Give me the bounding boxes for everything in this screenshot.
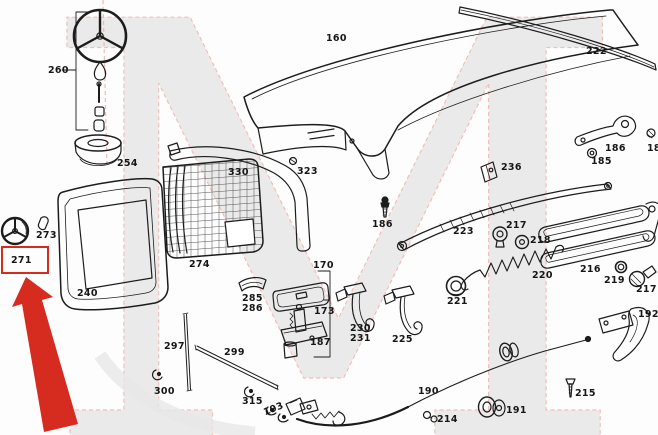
- watermark-m: M: [38, 0, 632, 435]
- part-label-254: 254: [117, 158, 138, 169]
- part-label-300: 300: [154, 386, 175, 397]
- part-label-274: 274: [189, 259, 210, 270]
- part-label-184: 184: [647, 143, 658, 154]
- part-label-330: 330: [228, 167, 249, 178]
- part-label-231: 231: [350, 333, 371, 344]
- diagram-art: M: [0, 0, 658, 435]
- part-label-286: 286: [242, 303, 263, 314]
- part-label-186a: 186: [372, 219, 393, 230]
- part-label-271: 271: [11, 255, 32, 266]
- part-label-221: 221: [447, 296, 468, 307]
- part-label-260: 260: [48, 65, 69, 76]
- part-label-173: 173: [314, 306, 335, 317]
- part-label-299: 299: [224, 347, 245, 358]
- parts-diagram-page: M: [0, 0, 658, 435]
- part-label-215: 215: [575, 388, 596, 399]
- part-label-323: 323: [297, 166, 318, 177]
- part-label-190: 190: [418, 386, 439, 397]
- part-label-160: 160: [326, 33, 347, 44]
- badge-271-drawing: [2, 218, 28, 244]
- part-label-218: 218: [530, 235, 551, 246]
- highlight-box: 271: [1, 246, 49, 274]
- part-label-185: 185: [591, 156, 612, 167]
- part-label-170: 170: [313, 260, 334, 271]
- part-label-225: 225: [392, 334, 413, 345]
- part-label-217b: 217: [636, 284, 657, 295]
- part-label-219: 219: [604, 275, 625, 286]
- part-label-222: 222: [586, 46, 607, 57]
- part-label-220: 220: [532, 270, 553, 281]
- part-label-214: 214: [437, 414, 458, 425]
- screw-184-drawing: [647, 129, 655, 138]
- part-label-240: 240: [77, 288, 98, 299]
- part-label-217a: 217: [506, 220, 527, 231]
- part-label-273: 273: [36, 230, 57, 241]
- part-label-297: 297: [164, 341, 185, 352]
- part-label-186b: 186: [605, 143, 626, 154]
- part-label-315: 315: [242, 396, 263, 407]
- part-label-236: 236: [501, 162, 522, 173]
- part-label-223: 223: [453, 226, 474, 237]
- part-label-187: 187: [310, 337, 331, 348]
- watermark-letter: M: [38, 0, 632, 435]
- part-label-192: 192: [638, 309, 658, 320]
- part-label-216: 216: [580, 264, 601, 275]
- part-label-191: 191: [506, 405, 527, 416]
